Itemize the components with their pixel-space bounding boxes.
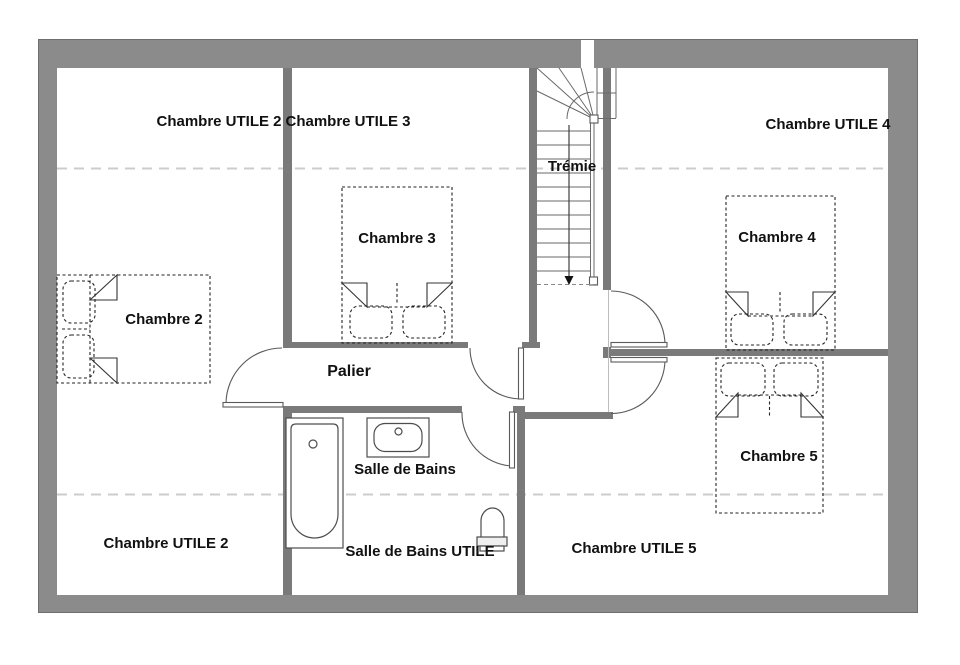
door-leaf: [611, 343, 667, 348]
room-label-salle-de-bains-utile: Salle de Bains UTILE: [345, 543, 494, 560]
room-label-palier: Palier: [327, 363, 371, 380]
newel-post: [590, 277, 598, 285]
door-leaf: [519, 348, 524, 399]
top-wall-gap: [581, 40, 594, 69]
room-label-chambre-utile-2-bottom: Chambre UTILE 2: [103, 535, 228, 552]
room-label-chambre-utile-5: Chambre UTILE 5: [571, 540, 696, 557]
floor-plan: Chambre UTILE 2 Chambre UTILE 3 Chambre …: [0, 0, 960, 665]
toilet-bowl: [481, 508, 504, 538]
door-leaf: [611, 358, 667, 363]
room-label-chambre-5: Chambre 5: [740, 448, 818, 465]
floor-plan-page: Chambre UTILE 2 Chambre UTILE 3 Chambre …: [0, 0, 960, 665]
room-label-tremie: Trémie: [548, 158, 596, 175]
room-label-salle-de-bains: Salle de Bains: [354, 461, 456, 478]
sink-icon: [367, 418, 429, 457]
room-label-chambre-2: Chambre 2: [125, 311, 203, 328]
faucet: [395, 428, 402, 435]
door-leaf: [510, 412, 515, 468]
drain: [309, 440, 317, 448]
room-label-chambre-utile-3: Chambre UTILE 3: [285, 113, 410, 130]
room-label-chambre-utile-4: Chambre UTILE 4: [765, 116, 891, 133]
room-label-chambre-4: Chambre 4: [738, 229, 816, 246]
newel-post: [590, 115, 598, 123]
room-label-chambre-3: Chambre 3: [358, 230, 436, 247]
door-leaf: [223, 403, 283, 408]
bathtub-icon: [286, 418, 343, 548]
room-label-chambre-utile-2-top: Chambre UTILE 2: [156, 113, 281, 130]
